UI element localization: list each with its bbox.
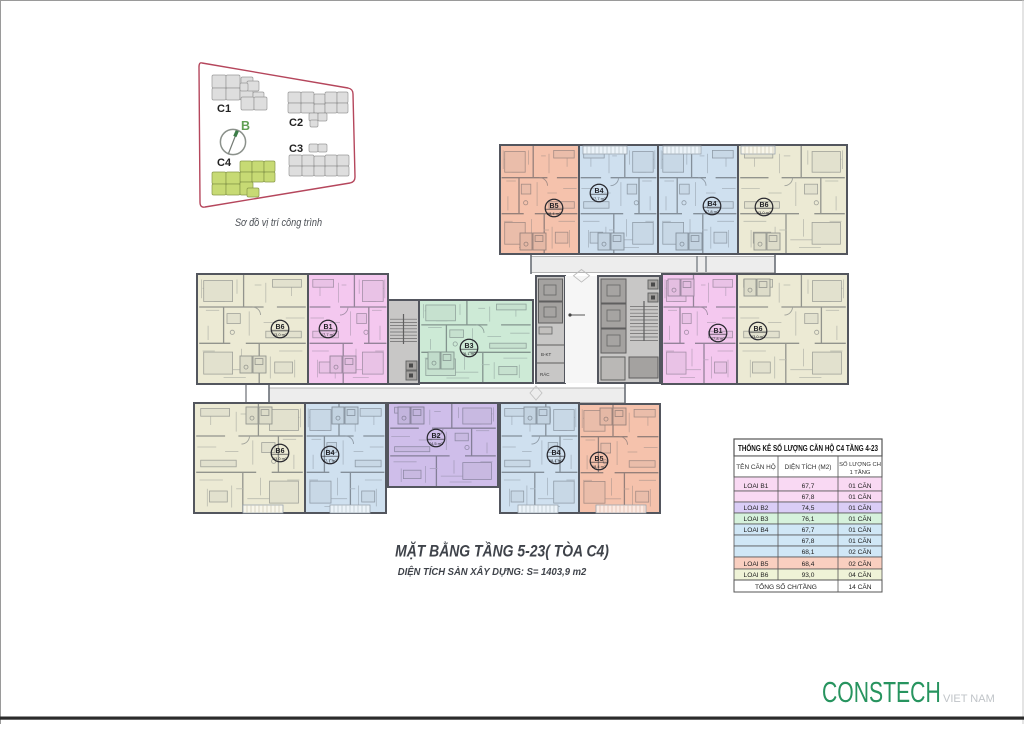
svg-text:B: B — [241, 119, 250, 133]
svg-text:93,0 m2: 93,0 m2 — [273, 332, 288, 337]
svg-text:76,1: 76,1 — [802, 516, 815, 523]
svg-text:LOAI B2: LOAI B2 — [744, 505, 769, 512]
svg-text:01 CĂN: 01 CĂN — [848, 536, 871, 545]
svg-text:C4: C4 — [217, 157, 232, 169]
svg-text:01 CĂN: 01 CĂN — [848, 514, 871, 523]
svg-text:LOAI B4: LOAI B4 — [744, 527, 769, 534]
svg-text:Sơ đồ vị trí công trình: Sơ đồ vị trí công trình — [235, 216, 322, 229]
svg-text:MẶT BẰNG TẦNG 5-23( TÒA C4): MẶT BẰNG TẦNG 5-23( TÒA C4) — [395, 541, 609, 561]
svg-text:01 CĂN: 01 CĂN — [848, 481, 871, 490]
svg-text:01 CĂN: 01 CĂN — [848, 503, 871, 512]
svg-text:B4: B4 — [595, 188, 604, 195]
svg-text:LOAI B3: LOAI B3 — [744, 516, 769, 523]
svg-text:76,1 m2: 76,1 m2 — [462, 351, 477, 356]
svg-text:C1: C1 — [217, 103, 231, 115]
svg-text:B2: B2 — [432, 433, 441, 440]
svg-text:93,0: 93,0 — [802, 572, 815, 579]
svg-text:C2: C2 — [289, 117, 303, 129]
svg-text:02 CĂN: 02 CĂN — [848, 559, 871, 568]
svg-text:67,7: 67,7 — [802, 483, 815, 490]
svg-text:B3: B3 — [465, 343, 474, 350]
svg-text:04 CĂN: 04 CĂN — [848, 570, 871, 579]
svg-text:67,7 m2: 67,7 m2 — [592, 196, 607, 201]
svg-text:68,4 m2: 68,4 m2 — [592, 464, 607, 469]
svg-text:67,7 m2: 67,7 m2 — [323, 458, 338, 463]
svg-text:01 CĂN: 01 CĂN — [848, 492, 871, 501]
svg-text:68,1: 68,1 — [802, 549, 815, 556]
svg-text:67,8 m2: 67,8 m2 — [711, 336, 726, 341]
svg-text:LOAI B5: LOAI B5 — [744, 561, 769, 568]
svg-text:DIỆN TÍCH SÀN XÂY DỰNG: S= 140: DIỆN TÍCH SÀN XÂY DỰNG: S= 1403,9 m2 — [398, 566, 587, 578]
svg-text:93,0 m2: 93,0 m2 — [751, 334, 766, 339]
svg-text:67,8: 67,8 — [802, 494, 815, 501]
svg-text:C3: C3 — [289, 143, 303, 155]
svg-text:LOAI B6: LOAI B6 — [744, 572, 769, 579]
svg-text:B4: B4 — [326, 450, 335, 457]
svg-text:01 CĂN: 01 CĂN — [848, 525, 871, 534]
svg-text:B-KT: B-KT — [541, 352, 552, 357]
svg-text:B5: B5 — [550, 203, 559, 210]
svg-text:68,4: 68,4 — [802, 561, 815, 568]
svg-text:B6: B6 — [276, 448, 285, 455]
svg-text:B6: B6 — [276, 324, 285, 331]
svg-text:DIỆN TÍCH (M2): DIỆN TÍCH (M2) — [785, 462, 832, 471]
svg-text:LOAI B1: LOAI B1 — [744, 483, 769, 490]
svg-text:68,1 m2: 68,1 m2 — [549, 458, 564, 463]
svg-text:B4: B4 — [552, 450, 561, 457]
svg-text:B1: B1 — [324, 324, 333, 331]
svg-text:67,7 m2: 67,7 m2 — [321, 332, 336, 337]
svg-text:93,0 m2: 93,0 m2 — [757, 210, 772, 215]
svg-text:1 TẦNG: 1 TẦNG — [850, 469, 871, 476]
svg-text:74,5: 74,5 — [802, 505, 815, 512]
svg-text:CONSTECH: CONSTECH — [822, 677, 941, 709]
svg-text:67,8 m2: 67,8 m2 — [705, 209, 720, 214]
svg-text:VIET NAM: VIET NAM — [943, 693, 995, 705]
svg-text:14 CĂN: 14 CĂN — [848, 582, 871, 591]
svg-text:68,4 m2: 68,4 m2 — [547, 211, 562, 216]
svg-text:67,8: 67,8 — [802, 538, 815, 545]
svg-text:SỐ LƯỢNG CH: SỐ LƯỢNG CH — [839, 461, 881, 468]
svg-text:B6: B6 — [760, 202, 769, 209]
svg-text:74,5 m2: 74,5 m2 — [429, 441, 444, 446]
svg-text:B1: B1 — [714, 328, 723, 335]
svg-text:B6: B6 — [754, 326, 763, 333]
svg-text:B4: B4 — [708, 201, 717, 208]
svg-text:B5: B5 — [595, 456, 604, 463]
svg-text:67,7: 67,7 — [802, 527, 815, 534]
svg-text:93,0 m2: 93,0 m2 — [273, 456, 288, 461]
svg-text:THỐNG KÊ SỐ LƯỢNG CĂN HỘ C4 TẦ: THỐNG KÊ SỐ LƯỢNG CĂN HỘ C4 TẦNG 4-23 — [738, 443, 878, 453]
svg-text:RÁC: RÁC — [540, 371, 550, 377]
svg-text:02 CĂN: 02 CĂN — [848, 547, 871, 556]
svg-text:TÊN CĂN HỘ: TÊN CĂN HỘ — [736, 462, 775, 471]
